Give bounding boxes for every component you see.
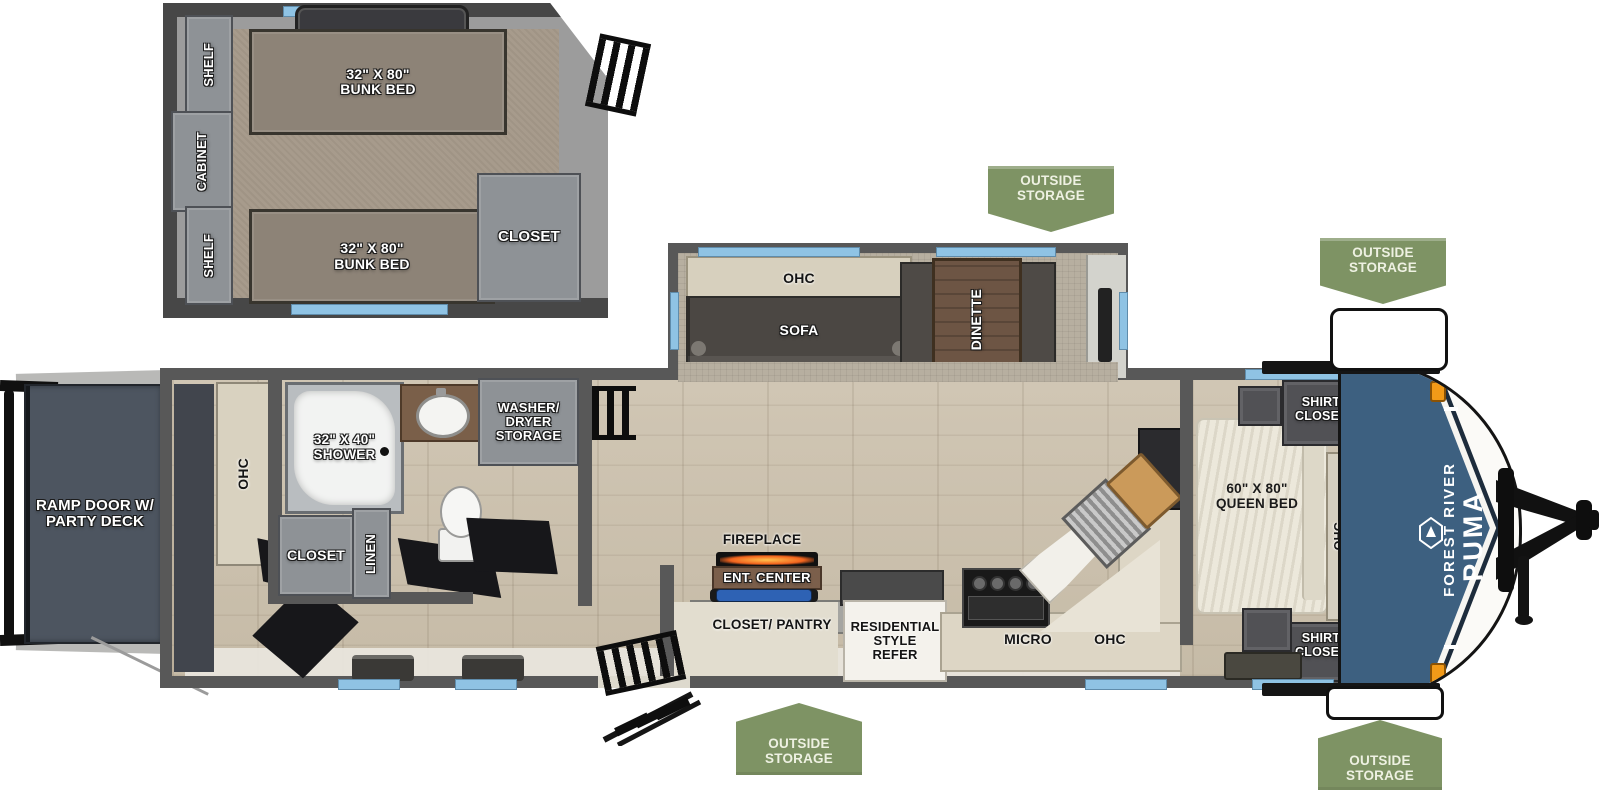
slide-window-top-1 <box>698 247 860 257</box>
bunk-room-inset: 32" X 80" BUNK BED 32" X 80" BUNK BED SH… <box>163 3 608 318</box>
hitch-icon <box>1496 428 1600 632</box>
bath-linen: LINEN <box>352 508 391 599</box>
bath-sink <box>416 394 470 438</box>
ent-center: ENT. CENTER <box>712 566 822 590</box>
bunk-closet-label: CLOSET <box>498 229 560 246</box>
shower-label: 32" X 40" SHOWER <box>302 433 388 463</box>
kitchen-ohc-label: OHC <box>1094 631 1126 647</box>
fireplace-flame <box>720 555 814 565</box>
banner-outside-storage-top-center: OUTSIDE STORAGE <box>988 166 1114 232</box>
bed-bench <box>1224 652 1302 680</box>
bedroom-wall <box>1180 380 1193 645</box>
bunk-bed-top-label: 32" X 80" BUNK BED <box>328 67 428 98</box>
tv-strip <box>716 589 812 602</box>
closet-pantry-floor <box>674 602 838 676</box>
bunk-shelf-top: SHELF <box>185 15 233 115</box>
bunk-bed-top: 32" X 80" BUNK BED <box>249 29 507 135</box>
entry-steps-icon-top <box>592 386 636 440</box>
bed-pillows <box>1302 428 1324 600</box>
washer-dryer-storage: WASHER/ DRYER STORAGE <box>478 378 579 466</box>
banner-outside-storage-bottom-center: OUTSIDE STORAGE <box>736 703 862 775</box>
slide-ohc-label: OHC <box>783 271 815 286</box>
storage-compartment-bottom <box>1326 686 1444 720</box>
window-bottom-2 <box>455 679 517 690</box>
washer-dryer-label: WASHER/ DRYER STORAGE <box>490 401 568 444</box>
front-cap: FOREST RIVER PUMA <box>1338 360 1522 702</box>
nightstand-top <box>1238 386 1282 426</box>
closet-pantry-label: CLOSET/ PANTRY <box>712 617 831 632</box>
ottoman-1 <box>352 655 414 681</box>
banner-outside-storage-top-right: OUTSIDE STORAGE <box>1320 238 1446 304</box>
dinette-bench-right <box>1018 262 1056 378</box>
floorplan-canvas: 32" X 80" BUNK BED 32" X 80" BUNK BED SH… <box>0 0 1600 790</box>
bath-faucet <box>436 388 446 396</box>
window-bottom-3 <box>1085 679 1167 690</box>
fireplace-label-wrap: FIREPLACE <box>706 533 818 548</box>
queen-bed-label: 60" X 80" QUEEN BED <box>1216 481 1298 511</box>
micro-label: MICRO <box>1004 631 1052 647</box>
micro-label-wrap: MICRO <box>996 632 1060 647</box>
bunk-bed-bottom: 32" X 80" BUNK BED <box>249 209 495 304</box>
ottoman-2 <box>462 655 524 681</box>
burner-1 <box>972 576 987 591</box>
brand-puma-label: PUMA <box>1459 489 1489 582</box>
kitchen-ohc-label-wrap: OHC <box>1080 632 1140 647</box>
shower: 32" X 40" SHOWER <box>285 382 404 514</box>
ramp-opening-shadow <box>174 384 214 672</box>
bath-closet: CLOSET <box>278 515 354 596</box>
ramp-door-label: RAMP DOOR W/ PARTY DECK <box>35 498 155 531</box>
bath-vanity <box>400 384 481 442</box>
oven-front <box>968 596 1044 620</box>
queen-bed <box>1196 418 1328 614</box>
bunk-shelf-top-label: SHELF <box>202 43 216 87</box>
refer-label: RESIDENTIAL STYLE REFER <box>850 620 940 663</box>
slide-tv <box>1098 288 1112 362</box>
bunk-shelf-bottom: SHELF <box>185 206 233 305</box>
slide-window-right <box>1119 292 1128 350</box>
closet-pantry-wrap: CLOSET/ PANTRY <box>712 618 832 633</box>
bunk-shelf-bottom-label: SHELF <box>202 234 216 278</box>
bunk-cabinet: CABINET <box>171 111 233 212</box>
banner-label: OUTSIDE STORAGE <box>1335 754 1425 784</box>
slide-window-left <box>670 292 679 350</box>
garage-ohc-label: OHC <box>236 458 251 490</box>
bath-linen-label: LINEN <box>364 534 378 574</box>
banner-label: OUTSIDE STORAGE <box>754 737 844 767</box>
marker-light-bottom <box>1430 663 1446 684</box>
slide-out: OHC SOFA DINETTE <box>668 243 1128 380</box>
ramp-door-party-deck: RAMP DOOR W/ PARTY DECK <box>24 384 166 644</box>
sofa-label: SOFA <box>780 323 819 338</box>
banner-label: OUTSIDE STORAGE <box>1338 246 1428 276</box>
shower-drain-dot <box>380 447 389 456</box>
dinette-label: DINETTE <box>969 289 984 350</box>
ent-center-label: ENT. CENTER <box>723 571 810 585</box>
banner-label: OUTSIDE STORAGE <box>1006 174 1096 204</box>
slide-window-top-2 <box>936 247 1056 257</box>
marker-light-top <box>1430 381 1446 402</box>
brand-dash-top <box>1444 407 1458 411</box>
nightstand-bottom <box>1242 608 1292 652</box>
dinette-bench-left <box>900 262 934 378</box>
bunk-room-window-bottom <box>291 304 448 315</box>
brand-dash-bottom <box>1444 645 1458 649</box>
fireplace-label: FIREPLACE <box>723 532 801 547</box>
exterior-steps-icon <box>594 684 706 746</box>
burner-3 <box>1008 576 1023 591</box>
sofa: SOFA <box>686 296 912 366</box>
bunk-cabinet-label: CABINET <box>195 132 209 191</box>
refer: RESIDENTIAL STYLE REFER <box>843 600 947 682</box>
bath-closet-label: CLOSET <box>287 548 345 563</box>
banner-outside-storage-bottom-right: OUTSIDE STORAGE <box>1318 720 1442 790</box>
slide-floor-patch <box>678 362 1118 382</box>
storage-compartment-top <box>1330 308 1448 371</box>
window-bottom-1 <box>338 679 400 690</box>
burner-2 <box>990 576 1005 591</box>
brand-forest-river-label: FOREST RIVER <box>1442 462 1459 597</box>
bunk-ladder-icon <box>585 33 651 116</box>
brand-puma: PUMA <box>1459 471 1489 601</box>
bathroom-wall-right <box>578 380 592 606</box>
bunk-bed-bottom-label: 32" X 80" BUNK BED <box>322 241 422 272</box>
ramp-rail-left <box>4 390 14 638</box>
queen-bed-label-wrap: 60" X 80" QUEEN BED <box>1202 482 1312 512</box>
garage-ohc: OHC <box>216 382 272 566</box>
bunk-closet: CLOSET <box>477 173 581 302</box>
brand-emblem-icon <box>1419 517 1443 549</box>
sofa-armrest-left <box>691 341 706 356</box>
